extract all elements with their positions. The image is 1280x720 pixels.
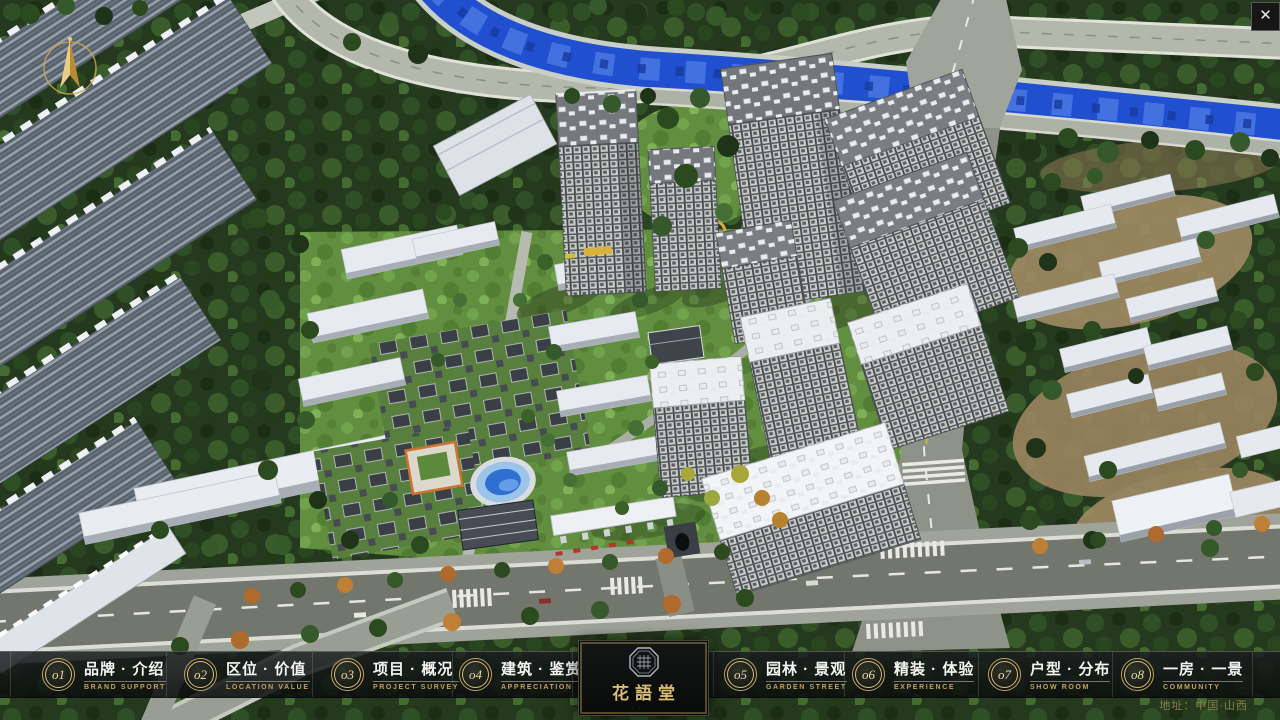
project-name: 花語堂 — [606, 679, 681, 704]
nav-number: o2 — [187, 661, 214, 688]
sales-center — [406, 442, 463, 494]
masterplan-3d-viewport[interactable] — [0, 0, 1280, 720]
nav-badge-o5: o5 — [724, 658, 757, 691]
nav-item-architecture[interactable]: o4 建筑 · 鉴赏 APPRECIATION — [459, 658, 581, 691]
nav-badge-o6: o6 — [852, 658, 885, 691]
nav-label-en: LOCATION VALUE — [226, 684, 310, 691]
project-tagline: · · · · · · · · — [619, 706, 667, 711]
nav-separator — [1112, 652, 1113, 697]
seal-emblem-icon — [629, 647, 659, 677]
nav-badge-o2: o2 — [184, 658, 217, 691]
nav-label-en: APPRECIATION — [501, 684, 581, 691]
nav-separator — [312, 652, 313, 697]
nav-badge-o7: o7 — [988, 658, 1021, 691]
nav-badge-o8: o8 — [1121, 658, 1154, 691]
compass-needle-light — [60, 39, 70, 88]
nav-item-brand[interactable]: o1 品牌 · 介绍 BRAND SUPPORT — [42, 658, 166, 691]
presentation-window: ✕ o1 品牌 · 介绍 BRAND SUPPORT o2 区位 · 价值 LO… — [0, 0, 1280, 720]
nav-number: o5 — [727, 661, 754, 688]
nav-separator — [978, 652, 979, 697]
nav-number: o4 — [462, 661, 489, 688]
project-logo-plaque[interactable]: 花語堂 · · · · · · · · — [578, 640, 709, 716]
nav-item-garden[interactable]: o5 园林 · 景观 GARDEN STREET — [724, 658, 847, 691]
close-button[interactable]: ✕ — [1251, 2, 1280, 31]
nav-item-project[interactable]: o3 项目 · 概况 PROJECT SURVEY — [331, 658, 459, 691]
compass — [38, 34, 102, 100]
nav-label-zh: 项目 · 概况 — [373, 658, 459, 682]
nav-label-zh: 区位 · 价值 — [226, 658, 310, 682]
tower-west-a — [556, 90, 646, 296]
nav-item-interior[interactable]: o6 精装 · 体验 EXPERIENCE — [852, 658, 974, 691]
nav-label-en: BRAND SUPPORT — [84, 684, 166, 691]
nav-label-en: PROJECT SURVEY — [373, 684, 459, 691]
nav-separator — [1252, 652, 1253, 697]
nav-label-zh: 精装 · 体验 — [894, 658, 974, 682]
nav-number: o1 — [45, 661, 72, 688]
nav-item-floorplan[interactable]: o7 户型 · 分布 SHOW ROOM — [988, 658, 1110, 691]
nav-separator — [10, 652, 11, 697]
nav-label-zh: 一房 · 一景 — [1163, 658, 1243, 682]
nav-label-zh: 品牌 · 介绍 — [84, 658, 166, 682]
close-icon: ✕ — [1259, 7, 1272, 24]
nav-badge-o1: o1 — [42, 658, 75, 691]
nav-badge-o3: o3 — [331, 658, 364, 691]
nav-label-zh: 园林 · 景观 — [766, 658, 847, 682]
compass-tip — [68, 37, 72, 41]
nav-separator — [166, 652, 167, 697]
nav-number: o3 — [334, 661, 361, 688]
nav-label-zh: 户型 · 分布 — [1030, 658, 1110, 682]
nav-label-en: GARDEN STREET — [766, 684, 847, 691]
nav-item-views[interactable]: o8 一房 · 一景 COMMUNITY — [1121, 658, 1243, 691]
nav-item-location[interactable]: o2 区位 · 价值 LOCATION VALUE — [184, 658, 310, 691]
nav-separator — [713, 652, 714, 697]
nav-number: o7 — [991, 661, 1018, 688]
nav-label-zh: 建筑 · 鉴赏 — [501, 658, 581, 682]
nav-number: o6 — [855, 661, 882, 688]
nav-badge-o4: o4 — [459, 658, 492, 691]
nav-label-en: COMMUNITY — [1163, 684, 1243, 691]
nav-number: o8 — [1124, 661, 1151, 688]
nav-label-en: SHOW ROOM — [1030, 684, 1110, 691]
project-address: 地址：中国·山西 — [1159, 697, 1248, 713]
compass-needle-dark — [70, 39, 80, 88]
nav-label-en: EXPERIENCE — [894, 684, 974, 691]
